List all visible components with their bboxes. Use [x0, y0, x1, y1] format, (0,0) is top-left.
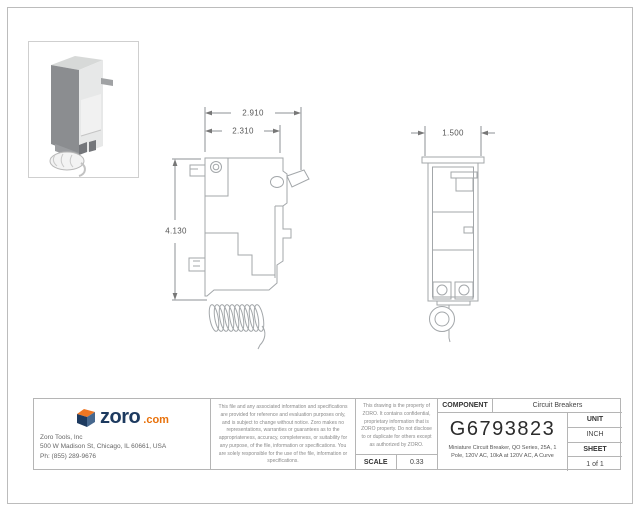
scale-row: SCALE 0.33 — [356, 454, 437, 469]
zoro-logo: zoro .com — [34, 406, 210, 428]
sheet-value: 1 of 1 — [568, 457, 622, 471]
unit-sheet-column: UNIT INCH SHEET 1 of 1 — [568, 413, 622, 471]
component-header-row: COMPONENT Circuit Breakers — [438, 399, 622, 413]
zoro-cube-icon — [75, 406, 97, 428]
part-number: G6793823 — [438, 418, 567, 441]
dimension-height: 4.130 — [162, 227, 190, 236]
sheet-label: SHEET — [568, 443, 622, 458]
component-label: COMPONENT — [438, 399, 493, 412]
company-address: 500 W Madison St, Chicago, IL 60661, USA — [40, 442, 210, 451]
property-cell: This drawing is the property of ZORO. It… — [356, 399, 438, 469]
brand-name: zoro — [100, 407, 140, 427]
brand-suffix: .com — [143, 415, 169, 426]
part-description: Miniature Circuit Breaker, QO Series, 25… — [445, 444, 561, 461]
dimension-side-width: 1.500 — [439, 129, 467, 138]
side-view-drawing — [411, 126, 495, 342]
front-view-drawing — [172, 107, 309, 349]
scale-label: SCALE — [356, 455, 397, 469]
component-cell: COMPONENT Circuit Breakers G6793823 Mini… — [438, 399, 622, 469]
property-notice-text: This drawing is the property of ZORO. It… — [356, 399, 437, 450]
disclaimer-cell: This file and any associated information… — [211, 399, 356, 469]
pigtail-coil-front — [208, 304, 266, 349]
drawing-sheet-page: 2.910 2.310 4.130 1.500 zoro .com Zoro T… — [0, 0, 640, 512]
unit-label: UNIT — [568, 413, 622, 428]
dimension-overall-width: 2.910 — [239, 109, 267, 118]
company-cell: zoro .com Zoro Tools, Inc 500 W Madison … — [34, 399, 211, 469]
component-value: Circuit Breakers — [493, 399, 622, 412]
dimension-body-width: 2.310 — [229, 127, 257, 136]
scale-value: 0.33 — [397, 455, 438, 469]
disclaimer-text: This file and any associated information… — [211, 399, 355, 466]
unit-value: INCH — [568, 428, 622, 443]
title-block: zoro .com Zoro Tools, Inc 500 W Madison … — [33, 398, 621, 470]
part-info: G6793823 Miniature Circuit Breaker, QO S… — [438, 413, 568, 471]
company-phone: Ph: (855) 289-9676 — [40, 452, 210, 461]
company-name: Zoro Tools, Inc — [40, 433, 210, 442]
